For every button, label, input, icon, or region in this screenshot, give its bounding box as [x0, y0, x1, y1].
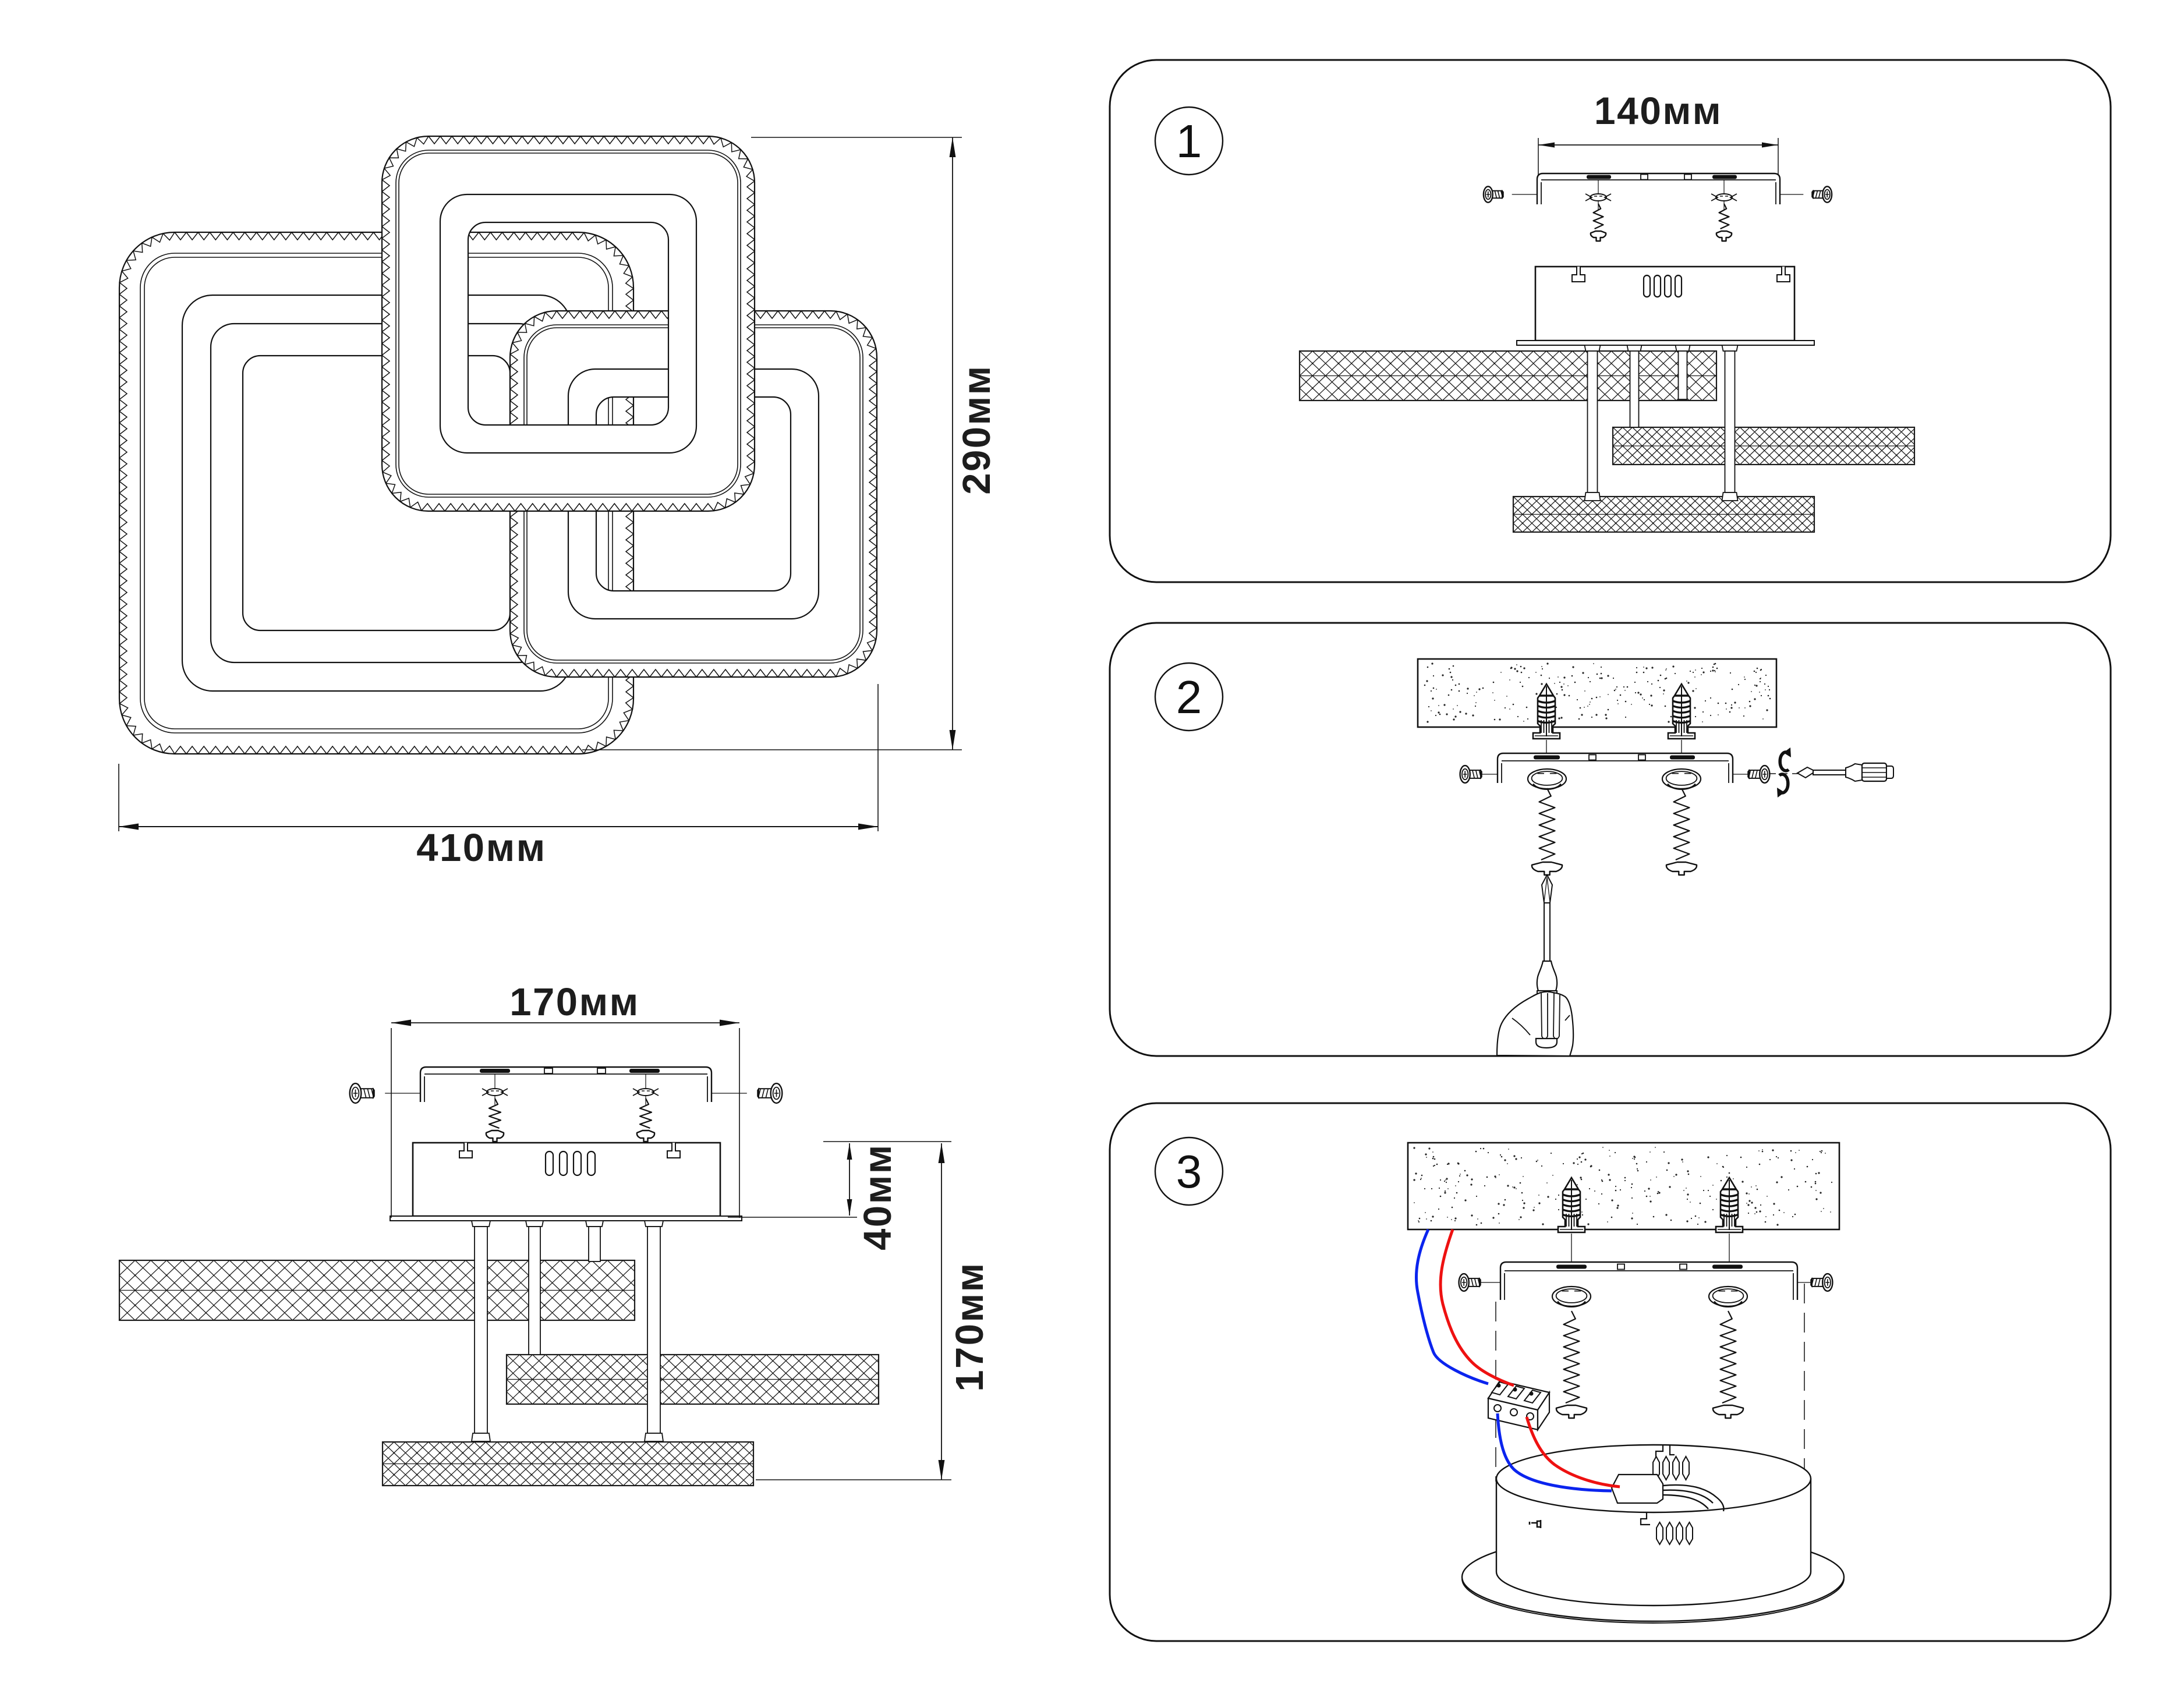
svg-text:170мм: 170мм	[948, 1261, 992, 1391]
svg-text:2: 2	[1176, 671, 1202, 723]
svg-text:3: 3	[1176, 1146, 1202, 1197]
svg-text:290мм: 290мм	[955, 364, 999, 494]
svg-text:1: 1	[1176, 115, 1202, 167]
svg-text:40мм: 40мм	[856, 1143, 900, 1250]
svg-text:140мм: 140мм	[1594, 89, 1722, 132]
svg-text:410мм: 410мм	[416, 826, 546, 870]
svg-text:170мм: 170мм	[509, 980, 639, 1024]
